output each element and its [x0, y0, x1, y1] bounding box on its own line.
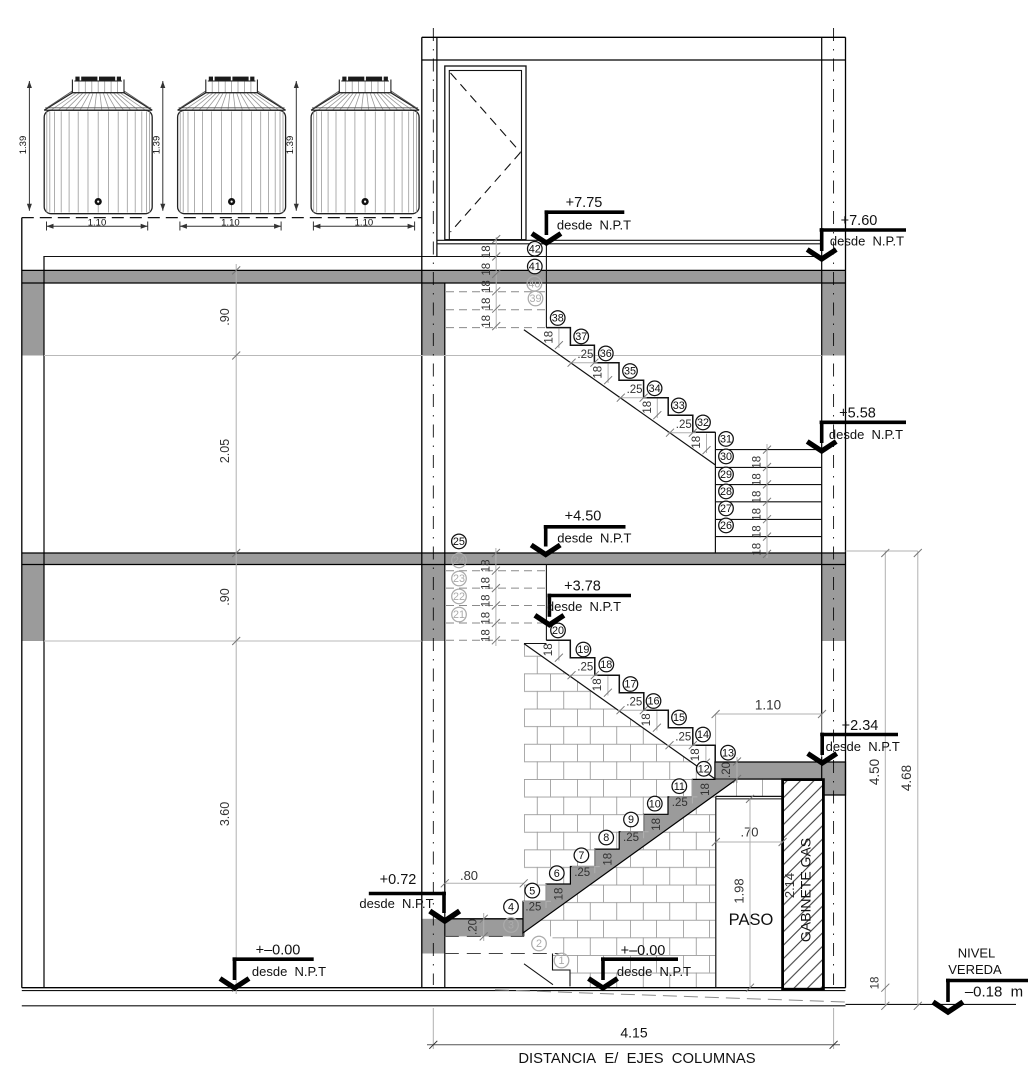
svg-text:1.10: 1.10	[755, 698, 781, 713]
svg-text:8: 8	[603, 832, 609, 844]
svg-text:12: 12	[698, 764, 710, 776]
svg-text:22: 22	[453, 591, 465, 603]
svg-text:18: 18	[752, 456, 764, 469]
svg-text:42: 42	[529, 244, 541, 256]
svg-text:1.98: 1.98	[732, 878, 747, 903]
svg-text:14: 14	[697, 729, 709, 741]
svg-text:11: 11	[674, 781, 685, 793]
svg-text:desde N.P.T: desde N.P.T	[829, 427, 903, 442]
svg-text:+–0.00: +–0.00	[256, 943, 301, 959]
svg-text:18: 18	[481, 612, 493, 625]
svg-text:+2.34: +2.34	[842, 718, 879, 734]
svg-text:18: 18	[752, 491, 764, 504]
svg-text:+4.50: +4.50	[565, 508, 602, 524]
svg-text:desde N.P.T: desde N.P.T	[617, 964, 691, 979]
svg-text:1.10: 1.10	[355, 217, 374, 228]
svg-text:18: 18	[554, 888, 566, 901]
svg-text:NIVEL: NIVEL	[958, 946, 996, 961]
svg-text:18: 18	[593, 366, 605, 379]
svg-text:+7.60: +7.60	[841, 213, 878, 229]
svg-text:18: 18	[481, 560, 493, 573]
svg-text:1.10: 1.10	[221, 217, 240, 228]
svg-text:19: 19	[577, 644, 589, 656]
svg-text:28: 28	[720, 486, 732, 498]
svg-text:4: 4	[508, 901, 514, 913]
svg-text:31: 31	[720, 434, 732, 446]
svg-text:23: 23	[453, 573, 465, 585]
svg-text:41: 41	[529, 261, 541, 273]
svg-text:9: 9	[628, 814, 634, 826]
svg-text:.25: .25	[577, 662, 593, 674]
svg-text:–0.18 m: –0.18 m	[965, 984, 1023, 1001]
svg-text:1.39: 1.39	[285, 136, 296, 155]
svg-text:.20: .20	[721, 762, 733, 778]
svg-text:33: 33	[673, 400, 685, 412]
svg-text:32: 32	[697, 417, 709, 429]
svg-text:2.05: 2.05	[218, 439, 232, 463]
svg-text:18: 18	[481, 298, 493, 311]
svg-text:18: 18	[481, 629, 493, 642]
svg-text:13: 13	[722, 747, 734, 759]
svg-text:+–0.00: +–0.00	[621, 943, 666, 959]
svg-text:1: 1	[558, 955, 564, 967]
svg-text:5: 5	[529, 885, 535, 897]
svg-text:35: 35	[624, 366, 636, 378]
svg-text:+5.58: +5.58	[839, 405, 876, 421]
svg-text:18: 18	[592, 678, 604, 691]
svg-text:18: 18	[481, 315, 493, 328]
svg-text:PASO: PASO	[729, 911, 774, 929]
svg-text:18: 18	[752, 543, 764, 556]
svg-text:18: 18	[481, 280, 493, 293]
svg-text:17: 17	[624, 679, 636, 691]
svg-text:18: 18	[642, 401, 654, 414]
svg-text:.90: .90	[218, 588, 232, 605]
svg-text:25: 25	[453, 536, 465, 548]
svg-text:desde N.P.T: desde N.P.T	[359, 896, 433, 911]
svg-text:18: 18	[481, 594, 493, 607]
svg-text:27: 27	[720, 503, 732, 515]
svg-text:20: 20	[552, 625, 564, 637]
svg-text:18: 18	[543, 331, 555, 344]
svg-text:18: 18	[690, 748, 702, 761]
svg-text:18: 18	[870, 977, 882, 990]
svg-text:18: 18	[481, 245, 493, 258]
svg-text:15: 15	[673, 712, 685, 724]
svg-text:4.50: 4.50	[867, 759, 882, 785]
svg-text:34: 34	[649, 383, 661, 395]
svg-text:.25: .25	[574, 867, 590, 879]
svg-text:.25: .25	[672, 797, 688, 809]
svg-text:18: 18	[481, 577, 493, 590]
svg-text:desde N.P.T: desde N.P.T	[252, 964, 326, 979]
svg-text:18: 18	[691, 436, 703, 449]
svg-text:10: 10	[649, 798, 661, 810]
svg-text:+7.75: +7.75	[566, 195, 603, 211]
svg-text:18: 18	[641, 713, 653, 726]
svg-text:desde N.P.T: desde N.P.T	[557, 218, 631, 233]
svg-text:.20: .20	[467, 919, 479, 935]
svg-text:7: 7	[578, 850, 584, 862]
svg-text:VEREDA: VEREDA	[948, 962, 1002, 977]
svg-text:desde N.P.T: desde N.P.T	[826, 739, 900, 754]
svg-text:desde N.P.T: desde N.P.T	[557, 531, 631, 546]
svg-text:+0.72: +0.72	[380, 872, 417, 888]
svg-text:38: 38	[552, 313, 564, 325]
svg-text:2.14: 2.14	[782, 873, 797, 898]
svg-text:4.15: 4.15	[620, 1025, 647, 1041]
svg-text:1.10: 1.10	[88, 217, 107, 228]
svg-text:+3.78: +3.78	[564, 579, 601, 595]
svg-text:1.39: 1.39	[18, 136, 29, 155]
svg-text:18: 18	[600, 659, 612, 671]
svg-text:2: 2	[536, 938, 542, 950]
svg-text:24: 24	[453, 555, 465, 567]
svg-text:21: 21	[453, 609, 465, 621]
svg-text:3.60: 3.60	[218, 802, 232, 826]
svg-text:18: 18	[602, 853, 614, 866]
svg-text:18: 18	[481, 263, 493, 276]
svg-text:18: 18	[752, 508, 764, 521]
svg-text:GABINETE GAS: GABINETE GAS	[798, 838, 814, 942]
svg-text:1.39: 1.39	[151, 136, 162, 155]
svg-text:16: 16	[647, 696, 659, 708]
svg-text:desde N.P.T: desde N.P.T	[547, 599, 621, 614]
svg-text:18: 18	[752, 473, 764, 486]
svg-text:4.68: 4.68	[899, 765, 914, 791]
svg-text:18: 18	[700, 783, 712, 796]
svg-text:.25: .25	[627, 384, 643, 396]
svg-text:3: 3	[508, 920, 514, 932]
svg-text:18: 18	[543, 643, 555, 656]
svg-text:.25: .25	[626, 697, 642, 709]
svg-text:40: 40	[528, 278, 540, 290]
svg-text:.25: .25	[577, 349, 593, 361]
svg-text:18: 18	[752, 525, 764, 538]
svg-text:.25: .25	[623, 832, 639, 844]
svg-text:.25: .25	[675, 732, 691, 744]
svg-text:37: 37	[575, 331, 587, 343]
svg-text:26: 26	[720, 520, 732, 532]
svg-text:39: 39	[529, 293, 541, 305]
svg-text:.25: .25	[676, 419, 692, 431]
svg-text:desde N.P.T: desde N.P.T	[830, 234, 904, 249]
svg-text:DISTANCIA E/ EJES COLUMNAS: DISTANCIA E/ EJES COLUMNAS	[518, 1051, 755, 1067]
svg-text:.90: .90	[218, 308, 232, 325]
svg-text:.80: .80	[460, 868, 478, 883]
svg-text:29: 29	[720, 469, 732, 481]
svg-text:36: 36	[600, 348, 612, 360]
svg-text:18: 18	[651, 818, 663, 831]
svg-text:6: 6	[554, 868, 560, 880]
svg-text:.25: .25	[525, 902, 541, 914]
svg-text:30: 30	[720, 451, 732, 463]
